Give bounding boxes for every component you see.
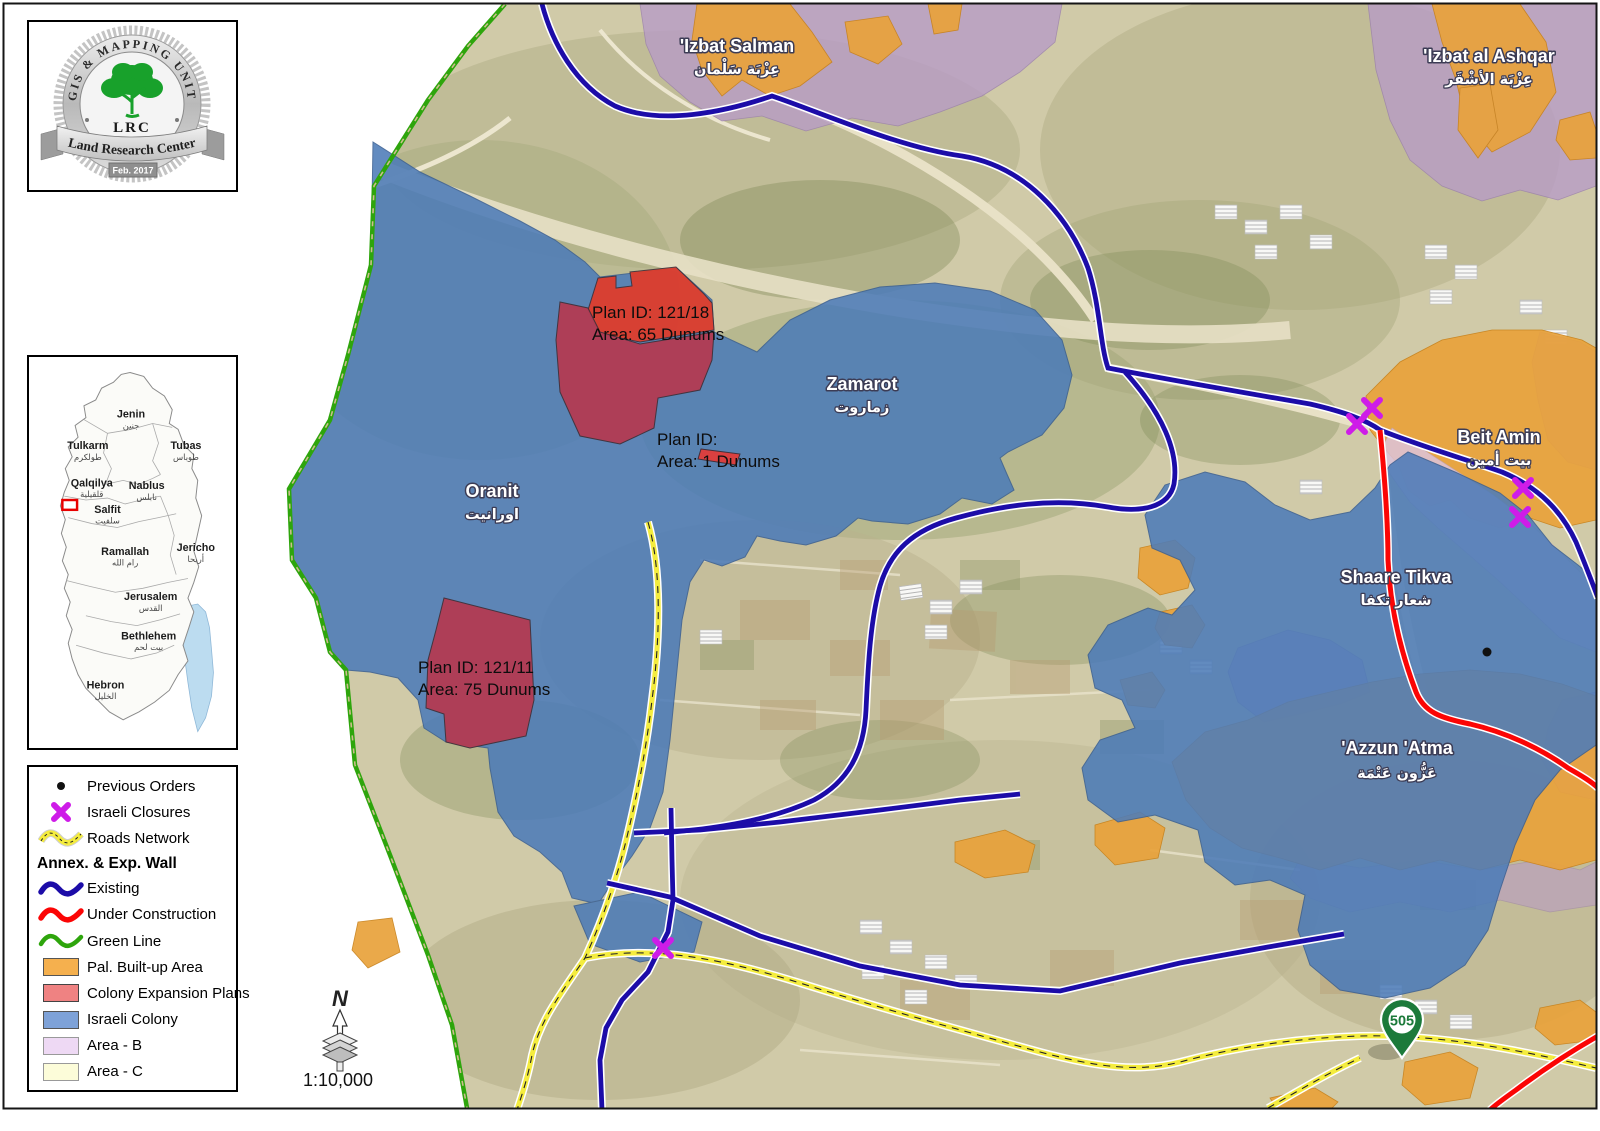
previous-order-dot bbox=[1483, 648, 1492, 657]
svg-text:القدس: القدس bbox=[139, 603, 163, 613]
place-label-izbat-al-ashqar: 'Izbat al Ashqar bbox=[1423, 46, 1555, 66]
svg-text:الخليل: الخليل bbox=[95, 691, 117, 701]
legend-row-area-c: Area - C bbox=[35, 1059, 236, 1085]
plan-label-121-11-area: Area: 75 Dunums bbox=[418, 680, 550, 699]
svg-text:Nablus: Nablus bbox=[129, 480, 165, 492]
legend-row-wall-header: Annex. & Exp. Wall bbox=[35, 852, 236, 876]
legend-row-green-line: Green Line bbox=[35, 928, 236, 954]
plan-label-121-18-id: Plan ID: 121/18 bbox=[592, 303, 709, 322]
seal-date: Feb. 2017 bbox=[112, 166, 153, 176]
legend-panel: Previous Orders Israeli Closures Roads N… bbox=[27, 765, 238, 1092]
plan-label-1dunum-id: Plan ID: bbox=[657, 430, 717, 449]
map-sheet: 505 'Izbat Salman عِزْبَة سَلْمان 'Izbat… bbox=[0, 0, 1600, 1131]
place-label-azzun-atma: 'Azzun 'Atma bbox=[1341, 738, 1454, 758]
legend-row-wall-existing: Existing bbox=[35, 876, 236, 902]
place-label-izbat-al-ashqar-ar: عِزْبَة الأشْقَر bbox=[1444, 70, 1533, 88]
svg-text:Jerusalem: Jerusalem bbox=[124, 591, 177, 603]
logo-panel: GIS & MAPPING UNIT LRC Land Research Cen… bbox=[27, 20, 238, 192]
svg-text:Bethlehem: Bethlehem bbox=[121, 630, 176, 642]
legend-section-header: Annex. & Exp. Wall bbox=[35, 855, 177, 873]
wall-existing-line-icon bbox=[35, 879, 87, 899]
svg-text:سلفيت: سلفيت bbox=[95, 516, 120, 526]
svg-text:جنين: جنين bbox=[123, 420, 140, 430]
legend-row-israeli-closures: Israeli Closures bbox=[35, 799, 236, 825]
svg-text:طولكرم: طولكرم bbox=[74, 452, 102, 462]
seal-acronym: LRC bbox=[113, 120, 151, 136]
plan-label-121-18-area: Area: 65 Dunums bbox=[592, 325, 724, 344]
plan-label-121-11-id: Plan ID: 121/11 bbox=[418, 658, 534, 677]
legend-row-colony-expansion: Colony Expansion Plans bbox=[35, 980, 236, 1006]
svg-text:رام الله: رام الله bbox=[112, 558, 138, 568]
green-line-icon bbox=[35, 931, 87, 951]
legend-row-previous-orders: Previous Orders bbox=[35, 773, 236, 799]
blue-swatch bbox=[43, 1011, 79, 1029]
svg-text:Qalqilya: Qalqilya bbox=[71, 477, 114, 489]
svg-text:بيت لحم: بيت لحم bbox=[134, 642, 163, 653]
svg-text:Tubas: Tubas bbox=[170, 440, 201, 452]
north-letter: N bbox=[332, 986, 349, 1011]
place-label-oranit: Oranit bbox=[465, 481, 518, 501]
wall-under-construction-line-icon bbox=[35, 905, 87, 925]
place-label-zamarot-ar: زماروت bbox=[835, 400, 890, 416]
svg-text:قلقيلية: قلقيلية bbox=[80, 489, 103, 499]
legend-label: Green Line bbox=[87, 933, 161, 950]
scale-text: 1:10,000 bbox=[303, 1070, 373, 1090]
inset-location-marker bbox=[62, 500, 77, 510]
route-number: 505 bbox=[1390, 1014, 1414, 1030]
place-label-izbat-salman: 'Izbat Salman bbox=[680, 36, 794, 56]
legend-label: Under Construction bbox=[87, 906, 216, 923]
svg-text:Ramallah: Ramallah bbox=[101, 546, 149, 558]
place-label-shaare-tikva-ar: شعار تكفا bbox=[1360, 593, 1431, 609]
map-canvas: 505 'Izbat Salman عِزْبَة سَلْمان 'Izbat… bbox=[0, 0, 1600, 1131]
place-label-shaare-tikva: Shaare Tikva bbox=[1341, 567, 1453, 587]
svg-text:Tulkarm: Tulkarm bbox=[67, 440, 108, 452]
legend-label: Pal. Built-up Area bbox=[87, 959, 203, 976]
svg-text:طوباس: طوباس bbox=[173, 452, 199, 462]
legend-label: Area - C bbox=[87, 1063, 143, 1080]
orange-swatch bbox=[43, 958, 79, 976]
west-bank-inset: Jeninجنين Tulkarmطولكرم Tubasطوباس Qalqi… bbox=[29, 357, 236, 748]
legend-row-pal-built-up: Pal. Built-up Area bbox=[35, 954, 236, 980]
road-line-icon bbox=[35, 828, 87, 848]
legend-label: Israeli Closures bbox=[87, 804, 190, 821]
svg-text:Jericho: Jericho bbox=[177, 542, 216, 554]
inset-map-panel: Jeninجنين Tulkarmطولكرم Tubasطوباس Qalqi… bbox=[27, 355, 238, 750]
legend-label: Previous Orders bbox=[87, 778, 195, 795]
closure-x-icon bbox=[35, 802, 87, 822]
place-label-zamarot: Zamarot bbox=[826, 374, 897, 394]
svg-text:Hebron: Hebron bbox=[87, 679, 125, 691]
legend-label: Area - B bbox=[87, 1037, 142, 1054]
purple-swatch bbox=[43, 1037, 79, 1055]
legend-row-roads-network: Roads Network bbox=[35, 825, 236, 851]
previous-orders-dot-icon bbox=[35, 777, 87, 795]
legend-label: Existing bbox=[87, 880, 140, 897]
plan-label-1dunum-area: Area: 1 Dunums bbox=[657, 452, 780, 471]
lrc-seal-icon: GIS & MAPPING UNIT LRC Land Research Cen… bbox=[29, 22, 236, 190]
legend-row-area-b: Area - B bbox=[35, 1033, 236, 1059]
place-label-oranit-ar: اورانيت bbox=[465, 507, 519, 523]
svg-text:نابلس: نابلس bbox=[136, 492, 157, 502]
place-label-azzun-atma-ar: عَزُّون عَتْمَة bbox=[1357, 762, 1437, 782]
red-swatch bbox=[43, 984, 79, 1002]
svg-text:Salfit: Salfit bbox=[94, 504, 121, 516]
legend-row-israeli-colony: Israeli Colony bbox=[35, 1007, 236, 1033]
yellow-swatch bbox=[43, 1063, 79, 1081]
legend-label: Israeli Colony bbox=[87, 1011, 178, 1028]
legend-label: Colony Expansion Plans bbox=[87, 985, 250, 1002]
place-label-beit-amin-ar: بيت أمين bbox=[1467, 451, 1532, 469]
svg-text:Jenin: Jenin bbox=[117, 409, 145, 421]
north-arrow-icon: N bbox=[323, 986, 357, 1071]
svg-text:أريحا: أريحا bbox=[187, 553, 204, 564]
legend-row-wall-under-construction: Under Construction bbox=[35, 902, 236, 928]
legend-label: Roads Network bbox=[87, 830, 190, 847]
place-label-beit-amin: Beit Amin bbox=[1457, 427, 1540, 447]
